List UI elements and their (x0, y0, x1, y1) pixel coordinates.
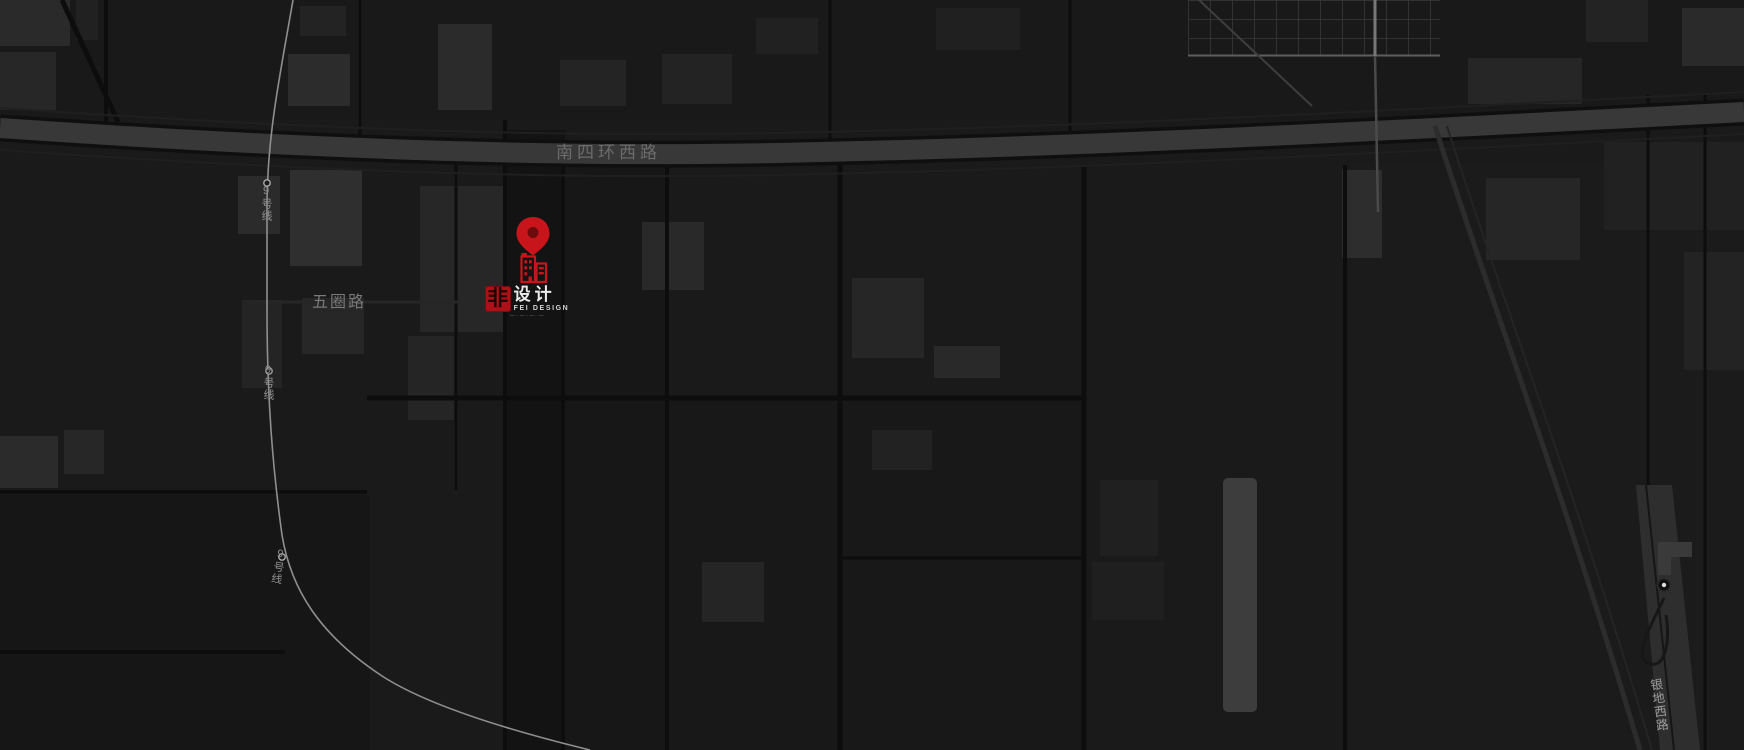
map-canvas[interactable]: 南四环西路 五圈路 9号线 9号线 9号线 银地西路 (0, 0, 1744, 750)
map-tile-layer (0, 0, 1744, 750)
logo-name-cn: 设计 (514, 286, 570, 303)
logo-name-en: FEI DESIGN (514, 305, 570, 312)
metro-station-ring (264, 180, 270, 186)
logo-tagline: — ·· — ·· — ·· — (510, 313, 544, 318)
metro-station-ring (279, 554, 285, 560)
metro-station-ring (266, 368, 272, 374)
building-icon (517, 252, 549, 285)
fei-design-logo: 非 设计 FEI DESIGN — ·· — ·· — ·· — (479, 286, 575, 322)
fei-logo-mark-icon: 非 (485, 286, 511, 312)
location-pin-icon[interactable] (514, 216, 552, 256)
